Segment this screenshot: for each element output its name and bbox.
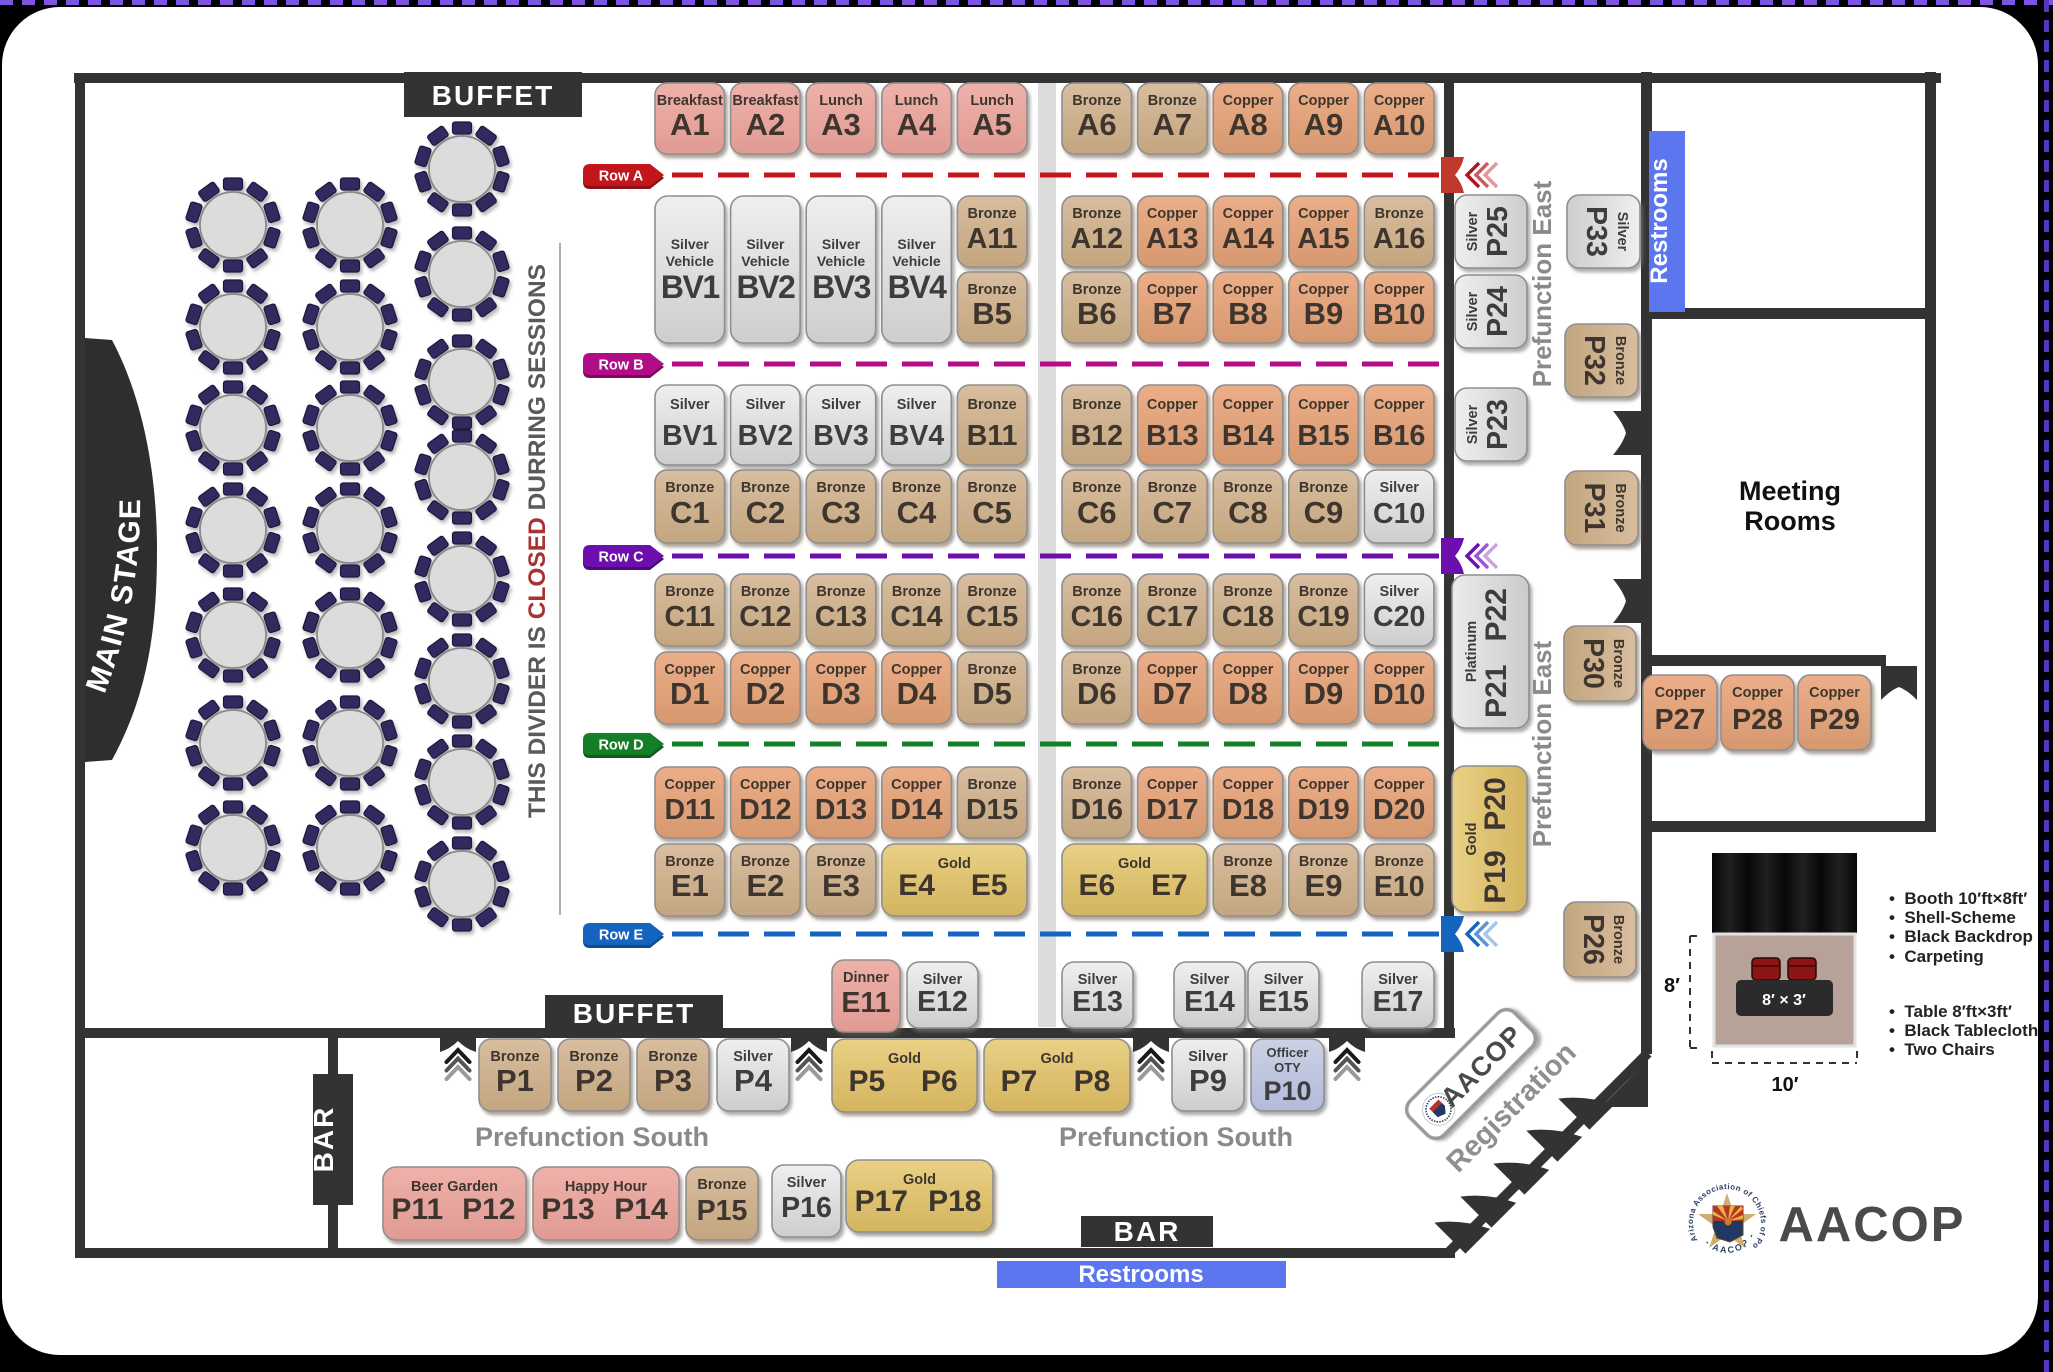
svg-text:Gold: Gold	[888, 1051, 921, 1067]
svg-text:Gold: Gold	[1118, 856, 1151, 872]
svg-text:A11: A11	[967, 223, 1018, 255]
svg-text:Bronze: Bronze	[1072, 397, 1121, 413]
svg-text:Copper: Copper	[1147, 397, 1198, 413]
svg-text:Bronze: Bronze	[1072, 206, 1121, 222]
svg-text:Silver: Silver	[746, 397, 786, 413]
svg-text:D10: D10	[1373, 679, 1425, 711]
svg-text:P10: P10	[1263, 1076, 1311, 1106]
svg-text:D8: D8	[1228, 676, 1268, 711]
svg-text:B8: B8	[1228, 296, 1268, 331]
svg-text:Prefunction South: Prefunction South	[1059, 1122, 1293, 1152]
svg-text:P29: P29	[1809, 704, 1860, 736]
svg-text:B10: B10	[1373, 299, 1425, 331]
svg-text:C6: C6	[1077, 495, 1117, 530]
svg-text:Bronze: Bronze	[741, 480, 790, 496]
svg-text:A2: A2	[746, 107, 786, 142]
svg-text:D14: D14	[890, 794, 942, 826]
svg-text:A7: A7	[1152, 107, 1192, 142]
svg-text:Silver: Silver	[670, 397, 710, 413]
svg-text:Bronze: Bronze	[1223, 480, 1272, 496]
svg-text:Copper: Copper	[1147, 206, 1198, 222]
svg-text:A13: A13	[1146, 223, 1198, 255]
svg-text:B6: B6	[1077, 296, 1117, 331]
svg-text:P26: P26	[1577, 914, 1609, 965]
svg-text:D16: D16	[1071, 794, 1123, 826]
svg-text:A8: A8	[1228, 107, 1268, 142]
svg-text:Prefunction East: Prefunction East	[1527, 640, 1557, 847]
svg-text:BV4: BV4	[889, 420, 945, 452]
svg-text:A9: A9	[1304, 107, 1344, 142]
svg-text:Copper: Copper	[1374, 662, 1425, 678]
svg-text:C19: C19	[1297, 601, 1349, 633]
svg-text:E12: E12	[917, 986, 968, 1018]
svg-text:Vehicle: Vehicle	[817, 253, 865, 269]
svg-text:Copper: Copper	[1223, 397, 1274, 413]
svg-text:Row A: Row A	[599, 169, 644, 185]
svg-text:Silver: Silver	[746, 236, 785, 252]
svg-text:Bronze: Bronze	[1299, 584, 1348, 600]
svg-text:Copper: Copper	[1374, 777, 1425, 793]
svg-text:• Shell-Scheme: • Shell-Scheme	[1889, 908, 2016, 927]
svg-text:D5: D5	[972, 676, 1012, 711]
svg-text:C20: C20	[1373, 601, 1425, 633]
svg-text:Bronze: Bronze	[968, 584, 1017, 600]
svg-text:8′ × 3′: 8′ × 3′	[1762, 992, 1806, 1009]
svg-text:C2: C2	[746, 495, 786, 530]
svg-text:BV3: BV3	[813, 420, 868, 452]
svg-text:• Black Backdrop: • Black Backdrop	[1889, 927, 2033, 946]
svg-text:P2: P2	[575, 1063, 613, 1098]
svg-text:Bronze: Bronze	[697, 1177, 746, 1193]
svg-text:A3: A3	[821, 107, 861, 142]
svg-text:P6: P6	[921, 1065, 958, 1098]
svg-text:Meeting: Meeting	[1739, 476, 1841, 506]
svg-text:OTY: OTY	[1274, 1060, 1301, 1075]
svg-text:Copper: Copper	[816, 777, 867, 793]
svg-text:Bronze: Bronze	[816, 480, 865, 496]
svg-text:Copper: Copper	[1298, 777, 1349, 793]
svg-text:E10: E10	[1374, 871, 1425, 903]
svg-text:D17: D17	[1146, 794, 1198, 826]
svg-text:A12: A12	[1071, 223, 1123, 255]
svg-text:C5: C5	[972, 495, 1012, 530]
svg-text:Prefunction South: Prefunction South	[475, 1122, 709, 1152]
svg-text:AACOP: AACOP	[1779, 1198, 1966, 1252]
svg-text:P30: P30	[1577, 638, 1609, 689]
svg-text:P15: P15	[697, 1195, 748, 1227]
svg-text:C1: C1	[670, 495, 710, 530]
svg-text:D1: D1	[670, 676, 710, 711]
svg-text:E9: E9	[1305, 868, 1343, 903]
svg-text:Silver: Silver	[1614, 212, 1630, 252]
svg-text:P5: P5	[848, 1065, 885, 1098]
svg-text:C9: C9	[1304, 495, 1344, 530]
svg-text:D7: D7	[1152, 676, 1192, 711]
svg-text:D12: D12	[739, 794, 791, 826]
svg-text:E2: E2	[746, 868, 784, 903]
svg-text:D15: D15	[966, 794, 1018, 826]
svg-text:Copper: Copper	[1374, 397, 1425, 413]
svg-text:THIS DIVIDER IS CLOSED DURRING: THIS DIVIDER IS CLOSED DURRING SESSIONS	[524, 264, 551, 818]
svg-text:Silver: Silver	[822, 236, 861, 252]
svg-text:Silver: Silver	[1465, 291, 1481, 331]
svg-text:Copper: Copper	[740, 777, 791, 793]
svg-text:C16: C16	[1071, 601, 1123, 633]
svg-text:Gold: Gold	[1464, 822, 1480, 855]
svg-text:P11: P11	[391, 1193, 443, 1226]
svg-text:C15: C15	[966, 601, 1018, 633]
svg-text:C17: C17	[1146, 601, 1198, 633]
svg-text:E6: E6	[1078, 869, 1115, 902]
svg-text:Copper: Copper	[891, 777, 942, 793]
svg-text:Bronze: Bronze	[968, 206, 1017, 222]
svg-text:Bronze: Bronze	[892, 480, 941, 496]
svg-text:P14: P14	[614, 1193, 668, 1226]
svg-text:Silver: Silver	[1379, 584, 1419, 600]
svg-text:Vehicle: Vehicle	[666, 253, 714, 269]
svg-text:B7: B7	[1152, 296, 1192, 331]
svg-text:B5: B5	[972, 296, 1012, 331]
svg-text:Row B: Row B	[598, 358, 643, 374]
svg-text:Vehicle: Vehicle	[892, 253, 940, 269]
svg-text:Bronze: Bronze	[1375, 854, 1424, 870]
svg-text:P13: P13	[541, 1193, 594, 1226]
svg-text:E13: E13	[1072, 986, 1123, 1018]
svg-text:Bronze: Bronze	[1148, 480, 1197, 496]
svg-text:Silver: Silver	[821, 397, 861, 413]
svg-text:C10: C10	[1373, 498, 1425, 530]
svg-text:C14: C14	[890, 601, 942, 633]
svg-text:Bronze: Bronze	[741, 584, 790, 600]
svg-text:A1: A1	[670, 107, 710, 142]
svg-text:P24: P24	[1482, 286, 1514, 337]
svg-text:Vehicle: Vehicle	[741, 253, 789, 269]
svg-text:Copper: Copper	[1655, 685, 1706, 701]
svg-text:Copper: Copper	[1223, 777, 1274, 793]
svg-text:Bronze: Bronze	[816, 584, 865, 600]
svg-text:P3: P3	[654, 1063, 692, 1098]
svg-text:Gold: Gold	[1040, 1051, 1073, 1067]
svg-text:E8: E8	[1229, 868, 1267, 903]
svg-text:E11: E11	[841, 987, 890, 1019]
svg-text:P4: P4	[734, 1063, 773, 1098]
svg-text:P17: P17	[855, 1185, 908, 1218]
svg-text:B16: B16	[1373, 420, 1425, 452]
svg-text:Copper: Copper	[1809, 685, 1860, 701]
svg-text:P16: P16	[781, 1192, 832, 1224]
svg-text:C12: C12	[739, 601, 791, 633]
svg-text:C11: C11	[664, 601, 715, 633]
svg-text:Copper: Copper	[1298, 397, 1349, 413]
svg-text:C18: C18	[1222, 601, 1274, 633]
svg-text:P7: P7	[1001, 1065, 1038, 1098]
svg-text:Bronze: Bronze	[968, 397, 1017, 413]
svg-text:Bronze: Bronze	[1223, 584, 1272, 600]
svg-text:Bronze: Bronze	[665, 480, 714, 496]
svg-text:P32: P32	[1578, 335, 1610, 386]
svg-text:C8: C8	[1228, 495, 1268, 530]
svg-text:C3: C3	[821, 495, 861, 530]
svg-text:P23: P23	[1482, 399, 1514, 450]
svg-text:Bronze: Bronze	[1610, 915, 1626, 964]
svg-text:8′: 8′	[1664, 975, 1680, 997]
svg-text:Copper: Copper	[1298, 206, 1349, 222]
svg-text:D4: D4	[897, 676, 937, 711]
svg-text:Copper: Copper	[1147, 777, 1198, 793]
svg-text:P20: P20	[1479, 777, 1512, 830]
svg-text:Bronze: Bronze	[1612, 336, 1628, 385]
svg-text:Gold: Gold	[938, 856, 971, 872]
svg-text:Dinner: Dinner	[843, 970, 889, 986]
svg-text:Platinum: Platinum	[1464, 621, 1480, 682]
svg-text:A15: A15	[1297, 223, 1349, 255]
svg-text:A14: A14	[1222, 223, 1274, 255]
svg-text:E15: E15	[1258, 986, 1309, 1018]
svg-text:10′: 10′	[1771, 1074, 1798, 1096]
svg-text:P1: P1	[496, 1063, 534, 1098]
svg-text:Silver: Silver	[1465, 211, 1481, 251]
svg-text:Rooms: Rooms	[1744, 506, 1836, 536]
svg-text:Restrooms: Restrooms	[1646, 158, 1673, 283]
svg-text:D13: D13	[815, 794, 867, 826]
svg-text:Copper: Copper	[1374, 93, 1425, 109]
svg-text:Silver: Silver	[787, 1175, 827, 1191]
svg-text:Copper: Copper	[664, 777, 715, 793]
svg-text:Row D: Row D	[598, 738, 643, 754]
svg-text:P22: P22	[1480, 588, 1513, 641]
svg-text:A6: A6	[1077, 107, 1117, 142]
svg-text:BAR: BAR	[308, 1106, 339, 1173]
svg-text:Restrooms: Restrooms	[1078, 1261, 1203, 1288]
svg-text:B12: B12	[1071, 420, 1123, 452]
svg-text:Bronze: Bronze	[1612, 483, 1628, 532]
svg-text:Copper: Copper	[1374, 282, 1425, 298]
svg-text:P9: P9	[1189, 1063, 1227, 1098]
svg-text:Bronze: Bronze	[1072, 480, 1121, 496]
svg-text:C13: C13	[815, 601, 867, 633]
svg-text:Bronze: Bronze	[1299, 480, 1348, 496]
svg-text:• Two Chairs: • Two Chairs	[1889, 1040, 1995, 1059]
svg-text:P33: P33	[1580, 206, 1612, 257]
svg-text:E4: E4	[898, 869, 935, 902]
svg-text:P8: P8	[1074, 1065, 1111, 1098]
svg-text:B13: B13	[1146, 420, 1198, 452]
svg-text:• Booth 10′ft×8ft′: • Booth 10′ft×8ft′	[1889, 889, 2027, 908]
svg-text:D2: D2	[746, 676, 786, 711]
svg-text:D9: D9	[1304, 676, 1344, 711]
svg-text:BV4: BV4	[888, 269, 947, 305]
svg-text:P21: P21	[1480, 665, 1513, 718]
svg-text:E3: E3	[822, 868, 860, 903]
svg-text:E14: E14	[1184, 986, 1235, 1018]
svg-text:Silver: Silver	[897, 397, 937, 413]
svg-text:E17: E17	[1373, 986, 1424, 1018]
svg-text:Officer: Officer	[1267, 1045, 1309, 1060]
svg-text:P27: P27	[1655, 704, 1706, 736]
svg-text:A4: A4	[897, 107, 937, 142]
svg-text:D19: D19	[1297, 794, 1349, 826]
svg-text:P19: P19	[1479, 850, 1512, 903]
svg-text:BV1: BV1	[661, 269, 719, 305]
svg-text:C4: C4	[897, 495, 937, 530]
svg-text:Silver: Silver	[671, 236, 710, 252]
svg-text:BV2: BV2	[737, 269, 795, 305]
svg-text:P28: P28	[1732, 704, 1783, 736]
svg-text:Silver: Silver	[1379, 480, 1419, 496]
svg-text:E1: E1	[671, 868, 709, 903]
svg-text:A5: A5	[972, 107, 1012, 142]
svg-text:BV2: BV2	[738, 420, 793, 452]
svg-text:P12: P12	[462, 1193, 515, 1226]
svg-text:Copper: Copper	[1732, 685, 1783, 701]
svg-text:D3: D3	[821, 676, 861, 711]
svg-text:BV3: BV3	[812, 269, 870, 305]
svg-text:• Table 8′ft×3ft′: • Table 8′ft×3ft′	[1889, 1002, 2012, 1021]
svg-text:Row E: Row E	[599, 928, 644, 944]
svg-text:B15: B15	[1297, 420, 1349, 452]
svg-text:BAR: BAR	[1114, 1216, 1181, 1247]
svg-text:Bronze: Bronze	[1072, 777, 1121, 793]
svg-text:Bronze: Bronze	[892, 584, 941, 600]
svg-text:B11: B11	[967, 420, 1018, 452]
svg-text:Row C: Row C	[598, 550, 644, 566]
svg-text:P31: P31	[1578, 483, 1610, 534]
svg-text:E7: E7	[1151, 869, 1188, 902]
svg-text:Silver: Silver	[897, 236, 936, 252]
svg-text:E5: E5	[971, 869, 1008, 902]
svg-text:Prefunction East: Prefunction East	[1527, 180, 1557, 387]
svg-text:BUFFET: BUFFET	[573, 998, 695, 1029]
svg-text:P25: P25	[1482, 206, 1514, 257]
svg-text:• Black Tablecloth: • Black Tablecloth	[1889, 1021, 2038, 1040]
svg-text:B9: B9	[1304, 296, 1344, 331]
svg-text:Bronze: Bronze	[1148, 584, 1197, 600]
svg-text:Bronze: Bronze	[665, 584, 714, 600]
svg-text:Bronze: Bronze	[968, 777, 1017, 793]
svg-text:C7: C7	[1152, 495, 1192, 530]
svg-text:Silver: Silver	[1465, 404, 1481, 444]
svg-text:Copper: Copper	[1223, 206, 1274, 222]
svg-text:BUFFET: BUFFET	[432, 80, 554, 111]
svg-text:Bronze: Bronze	[968, 480, 1017, 496]
svg-text:P18: P18	[928, 1185, 981, 1218]
svg-text:A16: A16	[1373, 223, 1425, 255]
svg-text:Bronze: Bronze	[1610, 639, 1626, 688]
svg-text:B14: B14	[1222, 420, 1274, 452]
svg-text:D11: D11	[664, 794, 715, 826]
svg-text:D18: D18	[1222, 794, 1274, 826]
svg-text:D6: D6	[1077, 676, 1117, 711]
svg-text:BV1: BV1	[662, 420, 718, 452]
svg-text:A10: A10	[1373, 110, 1425, 142]
svg-text:Bronze: Bronze	[1072, 584, 1121, 600]
svg-text:• Carpeting: • Carpeting	[1889, 947, 1984, 966]
svg-text:D20: D20	[1373, 794, 1425, 826]
svg-text:Bronze: Bronze	[1375, 206, 1424, 222]
